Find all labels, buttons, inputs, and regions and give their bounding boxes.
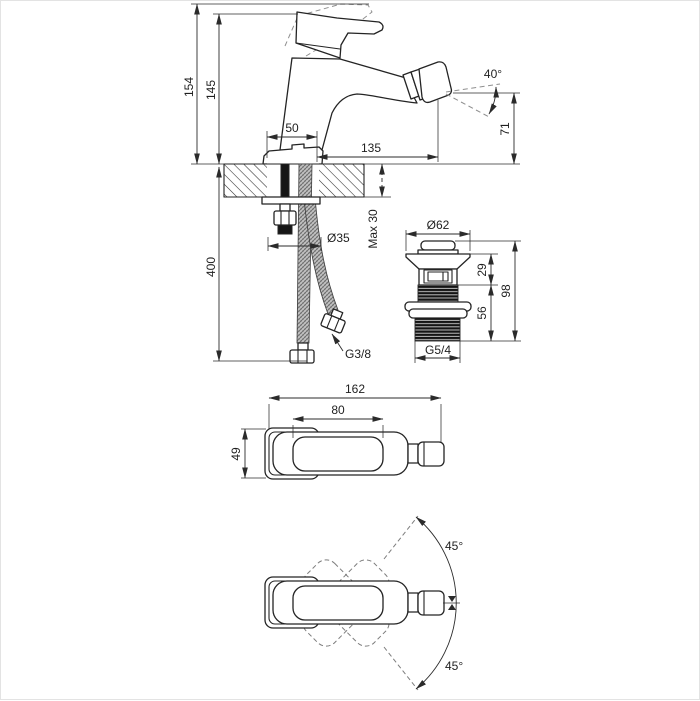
faucet-handle <box>296 12 383 58</box>
dim-62-label: Ø62 <box>427 218 450 232</box>
dim-45down-label: 45° <box>445 659 463 673</box>
rotation-view-aerator <box>418 591 444 615</box>
rotation-axis-upper <box>384 516 418 559</box>
g38-leader <box>332 334 343 351</box>
mounting-washer <box>262 197 320 204</box>
bidet-mixer-drawing: 154 145 400 50 135 40° 71 Max 30 Ø35 <box>1 1 700 701</box>
hose-right-fitting <box>320 307 348 334</box>
hose-left-shank <box>298 343 308 350</box>
rotation-axis-lower <box>384 647 418 690</box>
dim-71-label: 71 <box>498 122 512 136</box>
drain-flange <box>406 254 470 269</box>
drain-push-button <box>421 241 455 250</box>
faucet-rotation-view: 45° 45° <box>265 516 463 690</box>
dim-154-label: 154 <box>182 77 196 97</box>
drain-seal-flange-bottom <box>409 309 467 318</box>
dim-29-label: 29 <box>475 263 489 277</box>
dim-400-label: 400 <box>204 257 218 277</box>
dim-max30-label: Max 30 <box>366 209 380 249</box>
g38-label: G3/8 <box>345 347 371 361</box>
rotation-view-spout-neck <box>408 593 418 612</box>
spray-cone <box>446 84 500 118</box>
dim-145-label: 145 <box>204 80 218 100</box>
top-view-spout-neck <box>408 444 418 463</box>
dim-49-label: 49 <box>229 447 243 461</box>
dim-98-label: 98 <box>499 284 513 298</box>
drain-assembly <box>405 241 471 341</box>
dim-45up-label: 45° <box>445 539 463 553</box>
dim-56-label: 56 <box>475 306 489 320</box>
stud-shank <box>280 204 290 211</box>
drain-lower-thread <box>415 318 460 341</box>
drain-upper-thread <box>418 285 458 302</box>
countertop-section <box>224 163 364 198</box>
top-view-handle-pad <box>293 437 383 471</box>
aerator-cap <box>419 62 451 103</box>
faucet-base <box>263 144 323 164</box>
stud-tip <box>278 225 292 234</box>
dim-80-label: 80 <box>331 403 345 417</box>
faucet-top-view: 162 80 49 <box>229 382 444 479</box>
rotation-zero-tick-bottom <box>448 604 456 610</box>
rotation-view-handle-pad <box>293 586 383 620</box>
top-view-aerator <box>418 442 444 466</box>
dim-35-label: Ø35 <box>327 231 350 245</box>
faucet-body <box>280 58 417 150</box>
dim-50-label: 50 <box>285 121 299 135</box>
mounting-stud <box>281 164 289 197</box>
supply-hose-left <box>297 164 312 343</box>
faucet-side-view <box>263 4 500 164</box>
dim-g54-label: G5/4 <box>425 343 451 357</box>
dim-135-label: 135 <box>361 141 381 155</box>
dim-40deg-label: 40° <box>484 67 502 81</box>
rotation-zero-tick-top <box>448 596 456 602</box>
technical-drawing-page: 154 145 400 50 135 40° 71 Max 30 Ø35 <box>0 0 700 700</box>
mounting-nut <box>274 211 296 225</box>
dim-162-label: 162 <box>345 382 365 396</box>
